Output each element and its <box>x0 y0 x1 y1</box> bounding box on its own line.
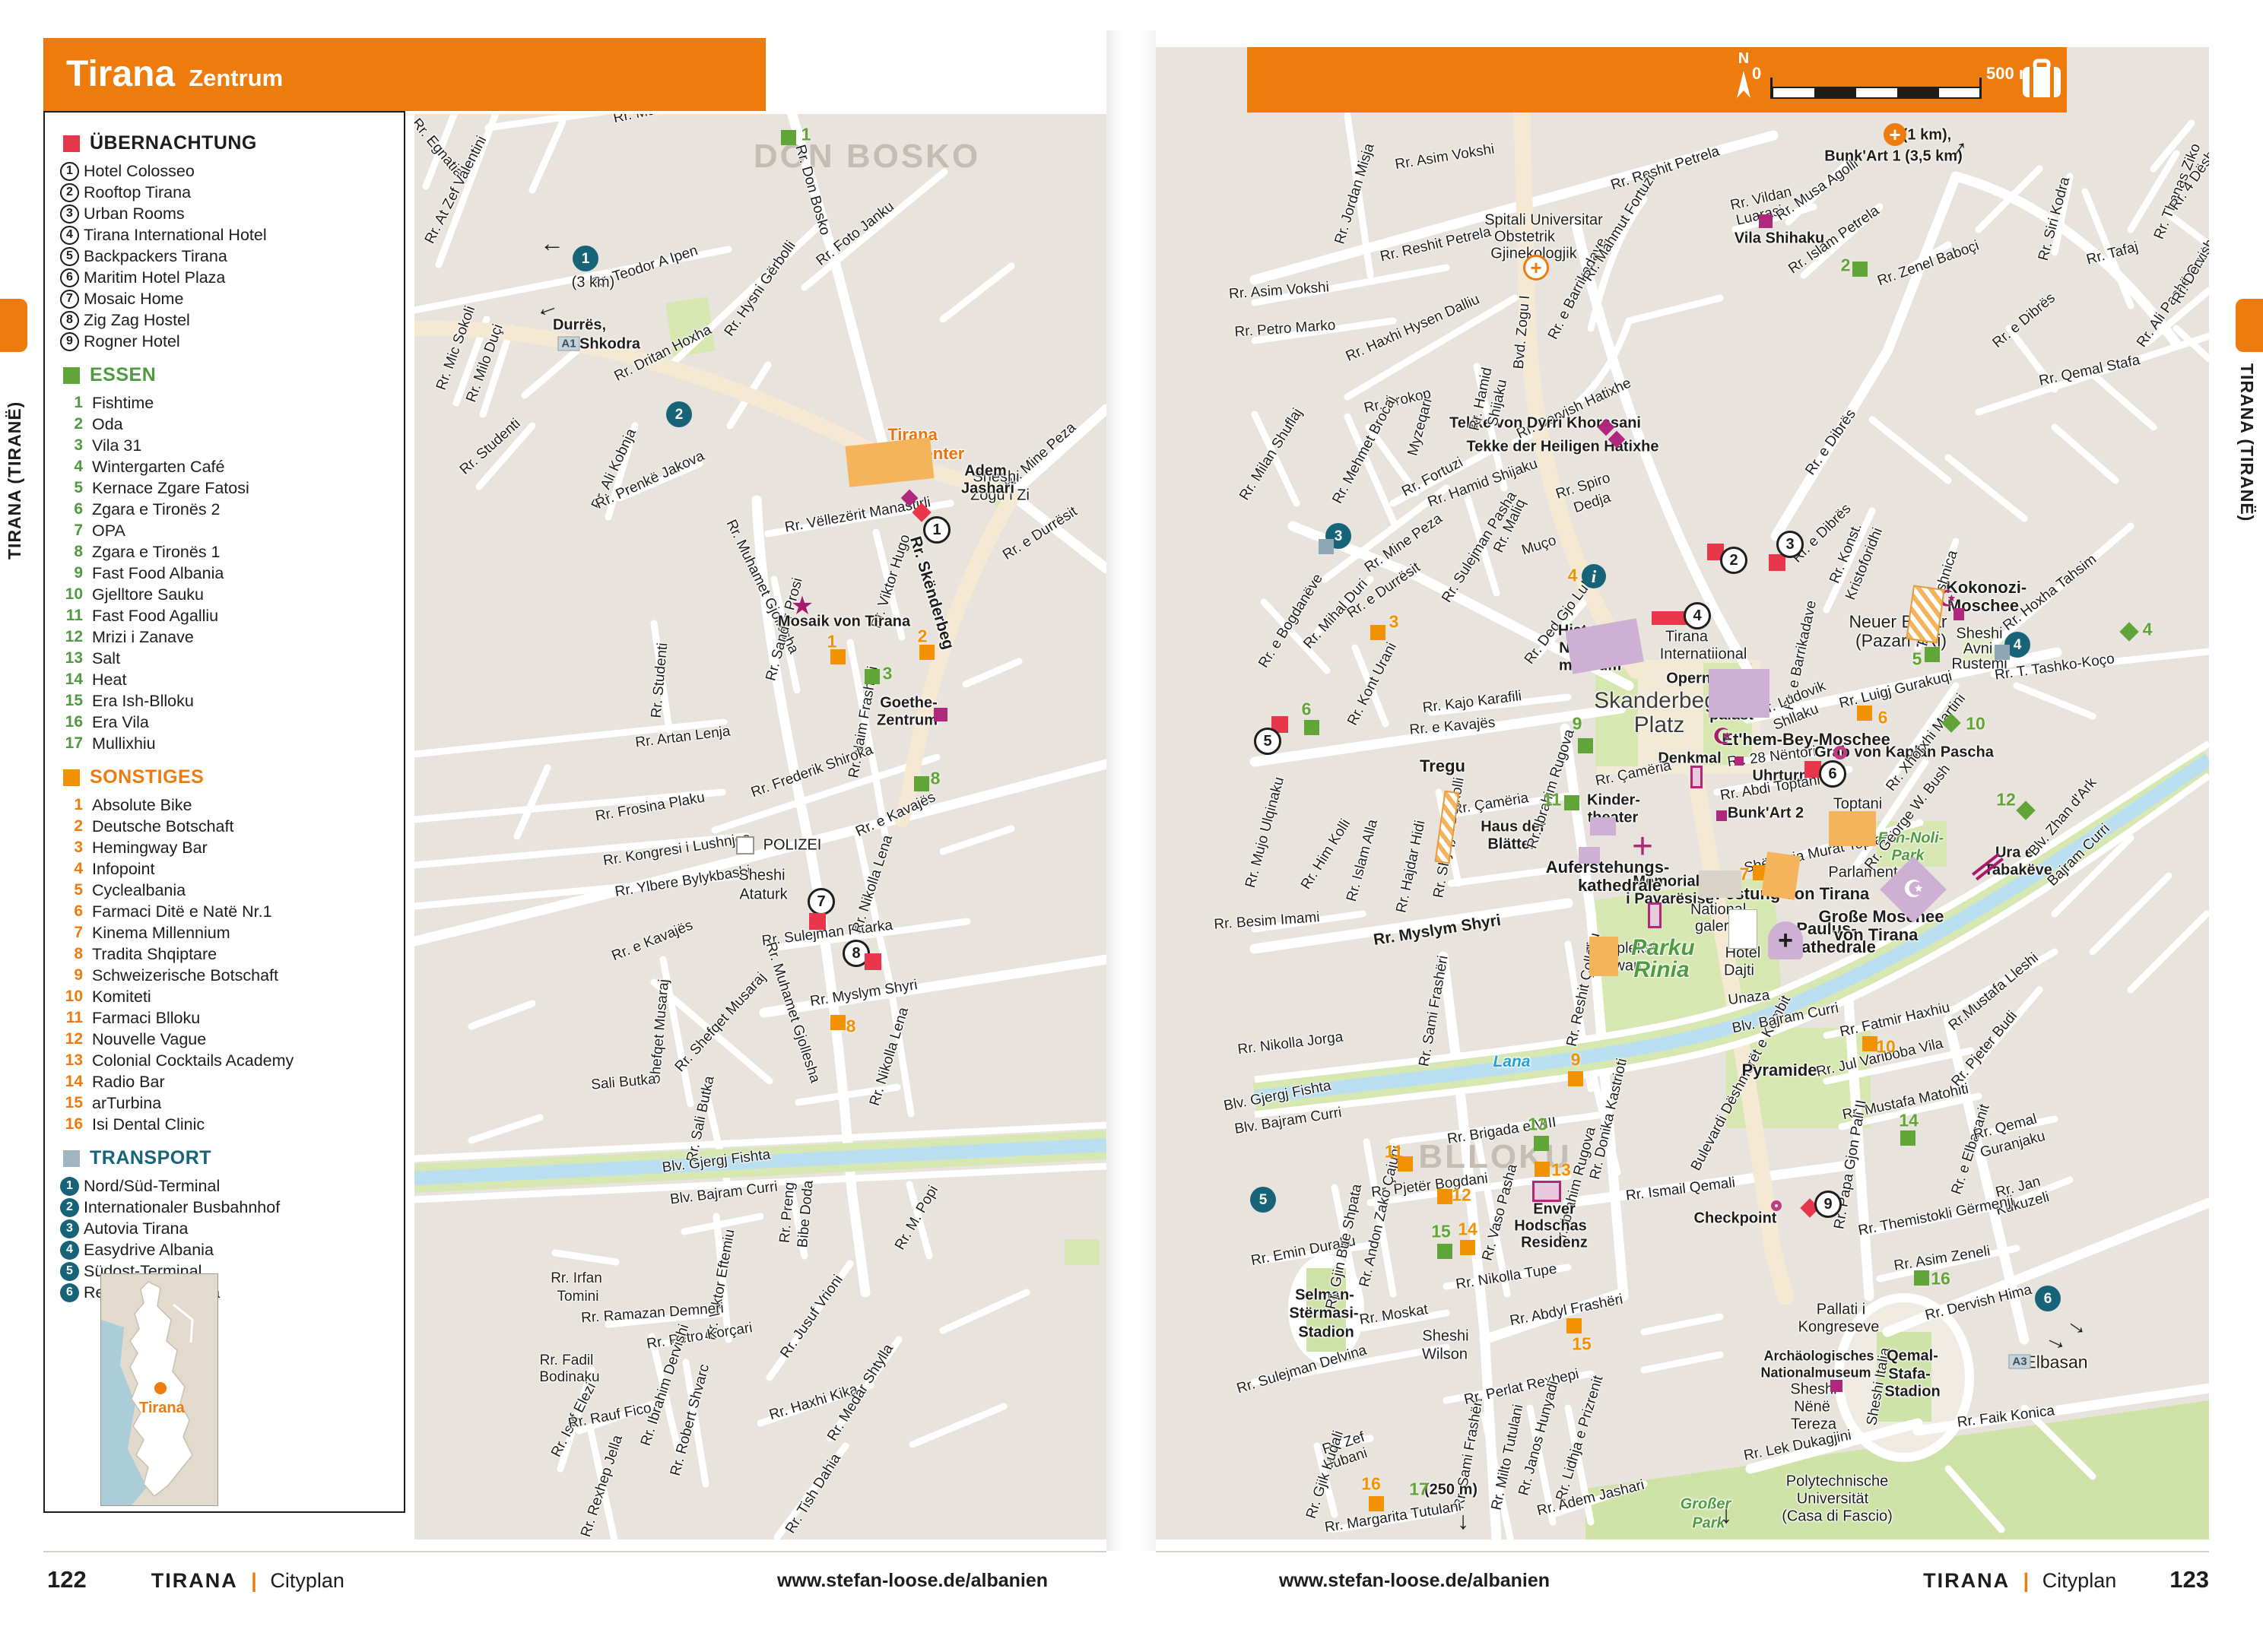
map-marker-bsq <box>1319 539 1334 554</box>
map-marker-hcirc-9: 9 <box>1814 1191 1842 1218</box>
map-marker-onum-13: 13 <box>1551 1162 1571 1179</box>
legend-item-number: 2 <box>60 817 87 836</box>
map-marker-gnum-11: 11 <box>1543 791 1561 809</box>
map-marker-pcross: + <box>1632 829 1653 865</box>
scale-bar <box>1772 87 1982 99</box>
map-label: von Tirana <box>1834 925 1919 945</box>
legend-item: 4Easydrive Albania <box>60 1239 399 1260</box>
legend-section-title: ESSEN <box>90 364 156 386</box>
map-marker-ring <box>1771 1200 1782 1211</box>
legend-item-number: 14 <box>60 1073 87 1091</box>
legend-item-label: Farmaci Ditë e Natë Nr.1 <box>92 902 272 921</box>
map-label: kathedrale <box>1578 876 1662 896</box>
map-label: Elbasan <box>2024 1352 2087 1373</box>
legend-item-number: 2 <box>60 1198 79 1217</box>
map-marker-gsq <box>1578 738 1593 753</box>
map-marker-tcirc-1: 1 <box>573 246 598 271</box>
legend-item-number: 3 <box>60 1219 79 1238</box>
legend-item: 14Heat <box>60 669 399 690</box>
legend-item-number: 11 <box>60 1009 87 1027</box>
map-label: Universität <box>1797 1491 1868 1508</box>
legend-item: 12Mrizi i Zanave <box>60 626 399 648</box>
map-marker-osq <box>1862 1036 1877 1051</box>
map-marker-rsq <box>1769 554 1785 571</box>
legend-item-number: 9 <box>60 564 87 582</box>
suitcase-icon <box>2020 56 2064 102</box>
map-marker-osq <box>1535 1162 1550 1177</box>
map-marker-gnum-2: 2 <box>1841 257 1851 274</box>
legend-item-number: 15 <box>60 1094 87 1112</box>
map-marker-hcirc-4: 4 <box>1684 602 1711 629</box>
legend-item-label: Nord/Süd-Terminal <box>84 1177 220 1196</box>
legend-section-title: TRANSPORT <box>90 1147 211 1169</box>
map-label: Adem <box>964 463 1007 480</box>
legend-item-label: Zig Zag Hostel <box>84 311 190 330</box>
map-label: (Casa di Fascio) <box>1782 1508 1893 1526</box>
map-label: Platz <box>1634 712 1685 738</box>
legend-item-label: Isi Dental Clinic <box>92 1115 205 1134</box>
map-marker-gnum-1: 1 <box>801 126 811 144</box>
legend-item: 11Fast Food Agalliu <box>60 605 399 626</box>
legend-item-number: 1 <box>60 394 87 412</box>
map-marker-gnum-16: 16 <box>1931 1270 1950 1288</box>
legend-item: 8Tradita Shqiptare <box>60 943 399 965</box>
legend-item-number: 3 <box>60 839 87 857</box>
map-marker-psq <box>1759 214 1773 228</box>
legend-item-number: 10 <box>60 585 87 604</box>
legend-item-number: 9 <box>60 966 87 985</box>
map-marker-gsq <box>1564 795 1579 810</box>
page-subtitle: Zentrum <box>189 65 283 92</box>
legend-item-label: Backpackers Tirana <box>84 247 227 266</box>
legend-item-label: Mullixhiu <box>92 734 156 753</box>
map-label: Vila Shihaku <box>1735 230 1825 248</box>
legend-panel: ÜBERNACHTUNG1Hotel Colosseo2Rooftop Tira… <box>43 111 405 1513</box>
map-label: Nationalmuseum <box>1760 1365 1871 1381</box>
map-label: Bodinaku <box>539 1369 599 1386</box>
map-label: Goethe- <box>880 695 938 712</box>
footer-separator-right: | <box>2016 1569 2037 1592</box>
map-marker-psq <box>934 708 947 721</box>
legend-item: 3Urban Rooms <box>60 203 399 224</box>
legend-item: 4Infopoint <box>60 858 399 880</box>
map-marker-hcirc-3: 3 <box>1776 531 1804 558</box>
map-marker-onum-3: 3 <box>1389 614 1399 631</box>
map-marker-onum-2: 2 <box>918 628 928 645</box>
side-tab-label-right: TIRANA (TIRANË) <box>2236 363 2257 522</box>
map-label: Sheshi <box>738 867 785 885</box>
legend-item-number: 4 <box>60 226 79 245</box>
map-marker-osq <box>1460 1240 1475 1255</box>
map-marker-prect <box>1648 902 1662 928</box>
map-marker-psq <box>1735 756 1744 766</box>
map-label: Polytechnische <box>1786 1473 1889 1491</box>
legend-item: 7OPA <box>60 520 399 541</box>
map-marker-cres: ☪ <box>1712 726 1731 747</box>
legend-item: 6Zgara e Tironës 2 <box>60 499 399 520</box>
legend-item: 10Gjelltore Sauku <box>60 584 399 605</box>
legend-item-number: 1 <box>60 1177 79 1196</box>
map-marker-osq <box>919 645 935 660</box>
legend-item-label: Nouvelle Vague <box>92 1030 206 1049</box>
map-marker-prect <box>1690 766 1703 788</box>
map-label: Parlament <box>1828 864 1897 882</box>
transport-swatch-icon <box>63 1150 80 1167</box>
map-label: Bunk'Art 2 <box>1728 805 1804 823</box>
legend-section-title: ÜBERNACHTUNG <box>90 132 257 154</box>
legend-item-label: Urban Rooms <box>84 205 185 224</box>
map-marker-bsq <box>1995 645 2010 660</box>
legend-item: 1Fishtime <box>60 392 399 414</box>
map-label: Kinder- <box>1587 792 1640 810</box>
legend-item-label: Komiteti <box>92 988 151 1007</box>
map-scale-header: N 0 500 m <box>1247 47 2067 113</box>
legend-item-label: Wintergarten Café <box>92 458 224 477</box>
legend-item: 12Nouvelle Vague <box>60 1029 399 1050</box>
legend-item-label: Kinema Millennium <box>92 924 230 943</box>
map-marker-arrow: → <box>540 239 564 264</box>
legend-item: 6Farmaci Ditë e Natë Nr.1 <box>60 901 399 922</box>
map-label: Residenz <box>1521 1235 1588 1252</box>
map-label: POLIZEI <box>763 837 822 855</box>
map-label: Lana <box>1493 1053 1530 1071</box>
legend-item-number: 4 <box>60 458 87 476</box>
legend-item-number: 5 <box>60 881 87 899</box>
map-label: Internatiional <box>1660 646 1747 664</box>
map-label: Spitali Universitar <box>1484 212 1603 230</box>
map-marker-hosp2: + <box>1523 255 1549 281</box>
map-label: Skanderbeg- <box>1594 688 1725 714</box>
legend-item-label: Maritim Hotel Plaza <box>84 268 225 287</box>
legend-item-label: Tradita Shqiptare <box>92 945 217 964</box>
map-marker-onum-10: 10 <box>1876 1038 1896 1056</box>
legend-item: 9Rogner Hotel <box>60 331 399 352</box>
map-label: Zentrum <box>877 712 938 730</box>
legend-item: 15arTurbina <box>60 1092 399 1114</box>
legend-section-uebernachtung: ÜBERNACHTUNG1Hotel Colosseo2Rooftop Tira… <box>60 132 399 352</box>
map-label: Dajti <box>1724 962 1754 980</box>
map-marker-badge-A3: A3 <box>2008 1355 2030 1369</box>
footer-brand-right: TIRANA <box>1923 1569 2010 1592</box>
legend-item-label: Absolute Bike <box>92 796 192 815</box>
legend-section-sonstiges: SONSTIGES1Absolute Bike2Deutsche Botscha… <box>60 766 399 1135</box>
legend-item-number: 2 <box>60 183 79 202</box>
legend-item-number: 6 <box>60 500 87 518</box>
map-label: Stadion <box>1884 1384 1940 1401</box>
map-label: Qemal- <box>1887 1348 1938 1365</box>
legend-item: 17Mullixhiu <box>60 733 399 754</box>
map-label: Tregu <box>1420 756 1465 776</box>
uebernachtung-swatch-icon <box>63 135 80 152</box>
legend-item-number: 13 <box>60 649 87 667</box>
map-marker-psq <box>1716 810 1727 821</box>
map-marker-badge-A1: A1 <box>557 337 579 351</box>
map-marker-info: i <box>1582 564 1606 588</box>
map-marker-onum-1: 1 <box>827 633 837 651</box>
map-marker-psq <box>1830 1380 1842 1392</box>
map-marker-rsq <box>809 913 826 930</box>
legend-item-number: 12 <box>60 628 87 646</box>
scale-zero: 0 <box>1752 64 1761 84</box>
map-marker-hcirc-7: 7 <box>808 888 835 915</box>
footer-rule-left <box>43 1551 1106 1552</box>
legend-item: 2Deutsche Botschaft <box>60 816 399 837</box>
legend-item-number: 11 <box>60 607 87 625</box>
page-number-right: 123 <box>2169 1566 2209 1593</box>
side-tab-label-left: TIRANA (TIRANË) <box>5 401 25 560</box>
legend-sections: ÜBERNACHTUNG1Hotel Colosseo2Rooftop Tira… <box>60 132 399 1303</box>
map-marker-gsq <box>865 669 880 684</box>
legend-item: 1Hotel Colosseo <box>60 160 399 182</box>
map-marker-gnum-3: 3 <box>883 665 893 683</box>
legend-item-label: Vila 31 <box>92 436 141 455</box>
map-marker-rsq <box>865 953 881 970</box>
map-marker-gnum-4: 4 <box>2143 621 2153 639</box>
map-marker-wbld <box>1728 909 1757 949</box>
legend-item-label: Easydrive Albania <box>84 1241 214 1260</box>
legend-item-label: OPA <box>92 522 125 541</box>
legend-item: 11Farmaci Blloku <box>60 1007 399 1029</box>
legend-item: 13Colonial Cocktails Academy <box>60 1050 399 1071</box>
map-label: Sheshi <box>1422 1328 1468 1346</box>
map-label: Tekke der Heiligen Hatixhe <box>1466 439 1658 456</box>
legend-item-number: 4 <box>60 1241 79 1260</box>
map-marker-church: + <box>1768 921 1803 959</box>
map-label: (3 km) <box>572 274 615 292</box>
legend-item: 13Salt <box>60 648 399 669</box>
map-label: Pyramide <box>1741 1061 1817 1080</box>
legend-item-label: Fast Food Agalliu <box>92 607 218 626</box>
legend-item-label: Era Vila <box>92 713 149 732</box>
map-marker-osq <box>1437 1189 1452 1204</box>
legend-item: 1Absolute Bike <box>60 794 399 816</box>
map-marker-gnum-8: 8 <box>931 770 941 788</box>
map-marker-gnum-17: 17 <box>1409 1481 1429 1498</box>
footer-brand-left: TIRANA <box>151 1569 238 1592</box>
legend-item: 2Oda <box>60 414 399 435</box>
legend-item-label: Fast Food Albania <box>92 564 224 583</box>
page-title-bar: Tirana Zentrum <box>43 38 766 111</box>
map-marker-onum-4: 4 <box>1568 567 1578 585</box>
legend-item: 6Maritim Hotel Plaza <box>60 267 399 288</box>
map-marker-hospO: + <box>1884 123 1906 146</box>
legend-item-number: 5 <box>60 247 79 266</box>
legend-item-number: 1 <box>60 796 87 814</box>
legend-item-label: Zgara e Tironës 1 <box>92 543 221 562</box>
map-marker-pbld <box>1709 669 1769 718</box>
minimap-city-label: Tirana <box>139 1400 186 1416</box>
map-marker-osq <box>1566 1318 1582 1333</box>
legend-item: 9Fast Food Albania <box>60 563 399 584</box>
map-marker-osq <box>1398 1156 1413 1172</box>
legend-item-number: 6 <box>60 902 87 921</box>
footer-url-left: www.stefan-loose.de/albanien <box>738 1565 1087 1595</box>
map-marker-gnum-15: 15 <box>1431 1223 1451 1241</box>
legend-item-label: Kernace Zgare Fatosi <box>92 479 249 498</box>
legend-item-label: Era Ish-Blloku <box>92 692 194 711</box>
map-marker-onum-8: 8 <box>846 1018 856 1035</box>
map-marker-star: ★ <box>791 593 814 619</box>
legend-item: 8Zig Zag Hostel <box>60 309 399 331</box>
map-label: Obstetrik <box>1494 229 1555 246</box>
legend-item: 15Era Ish-Blloku <box>60 690 399 712</box>
legend-item-number: 3 <box>60 436 87 455</box>
map-marker-orect <box>1761 851 1801 900</box>
legend-item-label: Oda <box>92 415 123 434</box>
legend-item-label: Tirana International Hotel <box>84 226 267 245</box>
map-marker-tcirc-6: 6 <box>2035 1286 2061 1311</box>
map-label: Pallati i <box>1817 1302 1865 1319</box>
legend-item-number: 16 <box>60 1115 87 1134</box>
map-marker-gsq <box>1900 1130 1915 1146</box>
legend-item-label: Gjelltore Sauku <box>92 585 204 604</box>
map-marker-onum-9: 9 <box>1571 1051 1581 1069</box>
map-marker-gnum-13: 13 <box>1528 1116 1547 1134</box>
legend-item-number: 6 <box>60 268 79 287</box>
legend-section-essen: ESSEN1Fishtime2Oda3Vila 314Wintergarten … <box>60 364 399 754</box>
map-label: Checkpoint <box>1694 1210 1777 1228</box>
legend-heading: ESSEN <box>63 364 399 386</box>
legend-item: 2Rooftop Tirana <box>60 182 399 203</box>
legend-item-label: Farmaci Blloku <box>92 1009 200 1028</box>
map-roads-left <box>414 114 1106 1539</box>
map-marker-gnum-5: 5 <box>1912 651 1922 668</box>
legend-item-label: Salt <box>92 649 120 668</box>
map-marker-hcirc-2: 2 <box>1720 547 1747 574</box>
map-marker-gnum-10: 10 <box>1966 715 1985 733</box>
legend-item-label: Infopoint <box>92 860 154 879</box>
map-marker-wsq <box>736 836 754 855</box>
legend-item-number: 16 <box>60 713 87 731</box>
map-label: Tomini <box>557 1289 599 1305</box>
legend-item: 2Internationaler Busbahnhof <box>60 1197 399 1218</box>
legend-item: 4Wintergarten Café <box>60 456 399 477</box>
map-marker-gnum-12: 12 <box>1996 791 2016 809</box>
legend-item-label: Heat <box>92 671 126 690</box>
map-marker-onum-15: 15 <box>1572 1336 1592 1353</box>
legend-item-number: 7 <box>60 924 87 942</box>
legend-item-number: 5 <box>60 479 87 497</box>
legend-item-label: Colonial Cocktails Academy <box>92 1051 294 1070</box>
map-marker-osq <box>1370 625 1385 640</box>
map-marker-gnum-9: 9 <box>1573 715 1582 733</box>
map-marker-gbld <box>1699 870 1741 898</box>
map-marker-orect <box>1829 811 1876 846</box>
map-marker-pbld <box>1579 847 1600 864</box>
map-marker-gsq <box>914 776 929 791</box>
side-tab-left <box>0 299 27 352</box>
map-marker-onum-16: 16 <box>1361 1476 1381 1493</box>
legend-item-number: 7 <box>60 290 79 309</box>
legend-item-label: Internationaler Busbahnhof <box>84 1198 280 1217</box>
map-marker-gsq <box>781 130 796 145</box>
map-label: Rr. Irfan <box>551 1270 602 1287</box>
map-marker-gsq <box>1437 1244 1452 1259</box>
page-title: Tirana <box>66 38 175 111</box>
map-marker-pbld <box>1590 817 1616 836</box>
footer-right: TIRANA | Cityplan 123 <box>1863 1565 2209 1595</box>
legend-item-number: 14 <box>60 671 87 689</box>
legend-heading: ÜBERNACHTUNG <box>63 132 399 154</box>
legend-item-number: 12 <box>60 1030 87 1048</box>
legend-item: 3Vila 31 <box>60 435 399 456</box>
legend-section-title: SONSTIGES <box>90 766 204 788</box>
map-label: Stadion <box>1298 1324 1354 1342</box>
legend-item-number: 2 <box>60 415 87 433</box>
map-marker-gsq <box>1914 1270 1929 1286</box>
legend-item: 8Zgara e Tironës 1 <box>60 541 399 563</box>
legend-item-number: 3 <box>60 205 79 224</box>
map-marker-rrect <box>1652 611 1688 625</box>
map-label: Kokonozi- <box>1946 578 2027 598</box>
map-label: Ataturk <box>739 886 787 904</box>
legend-item-label: Rooftop Tirana <box>84 183 191 202</box>
map-marker-osq <box>830 1015 846 1030</box>
footer-rule-right <box>1156 1551 2209 1552</box>
map-label: Rr. Fadil <box>540 1352 594 1369</box>
legend-item-label: Hotel Colosseo <box>84 162 195 181</box>
map-marker-gnum-14: 14 <box>1899 1112 1919 1130</box>
legend-heading: TRANSPORT <box>63 1147 399 1169</box>
map-label: Hodschas <box>1514 1218 1587 1235</box>
legend-item: 5Backpackers Tirana <box>60 246 399 267</box>
legend-item-number: 9 <box>60 332 79 351</box>
map-marker-tcirc-2: 2 <box>666 401 692 427</box>
map-marker-onum-6: 6 <box>1878 709 1888 727</box>
map-marker-gsq <box>1925 647 1940 662</box>
legend-item-number: 8 <box>60 945 87 963</box>
legend-item-number: 1 <box>60 162 79 181</box>
legend-item-number: 5 <box>60 1262 79 1281</box>
legend-item: 16Isi Dental Clinic <box>60 1114 399 1135</box>
legend-item: 16Era Vila <box>60 712 399 733</box>
legend-item-label: Mosaic Home <box>84 290 183 309</box>
map-label: Kongreseve <box>1798 1319 1880 1337</box>
footer-separator-left: | <box>243 1569 265 1592</box>
legend-item-label: arTurbina <box>92 1094 161 1113</box>
map-marker-arrowd: ↓ <box>1720 1502 1732 1527</box>
legend-item: 10Komiteti <box>60 986 399 1007</box>
legend-item-label: Radio Bar <box>92 1073 165 1092</box>
sonstiges-swatch-icon <box>63 769 80 786</box>
map-label: Rinia <box>1633 957 1689 983</box>
legend-item-label: Rogner Hotel <box>84 332 180 351</box>
legend-item-number: 7 <box>60 522 87 540</box>
legend-item: 4Tirana International Hotel <box>60 224 399 246</box>
url-right: www.stefan-loose.de/albanien <box>1279 1570 1550 1591</box>
legend-item-number: 6 <box>60 1283 79 1302</box>
essen-swatch-icon <box>63 367 80 384</box>
map-label: (250 m) <box>1424 1482 1477 1499</box>
legend-item-number: 17 <box>60 734 87 753</box>
map-marker-gnum-6: 6 <box>1302 701 1312 718</box>
map-label: Shkodra <box>579 336 640 354</box>
footer-left: 122 TIRANA | Cityplan <box>47 1565 344 1595</box>
map-marker-onum-14: 14 <box>1458 1221 1477 1238</box>
legend-item-label: Cyclealbania <box>92 881 186 900</box>
legend-heading: SONSTIGES <box>63 766 399 788</box>
legend-item: 5Cyclealbania <box>60 880 399 901</box>
map-marker-onum-12: 12 <box>1452 1187 1471 1204</box>
url-left: www.stefan-loose.de/albanien <box>777 1570 1048 1591</box>
map-label: Jashari <box>961 480 1014 498</box>
map-marker-hcirc-5: 5 <box>1254 728 1281 755</box>
albania-minimap: Tirana <box>100 1273 218 1506</box>
legend-item-label: Deutsche Botschaft <box>92 817 233 836</box>
legend-item-label: Schweizerische Botschaft <box>92 966 278 985</box>
map-marker-osq <box>1857 706 1872 721</box>
legend-item: 7Mosaic Home <box>60 288 399 309</box>
